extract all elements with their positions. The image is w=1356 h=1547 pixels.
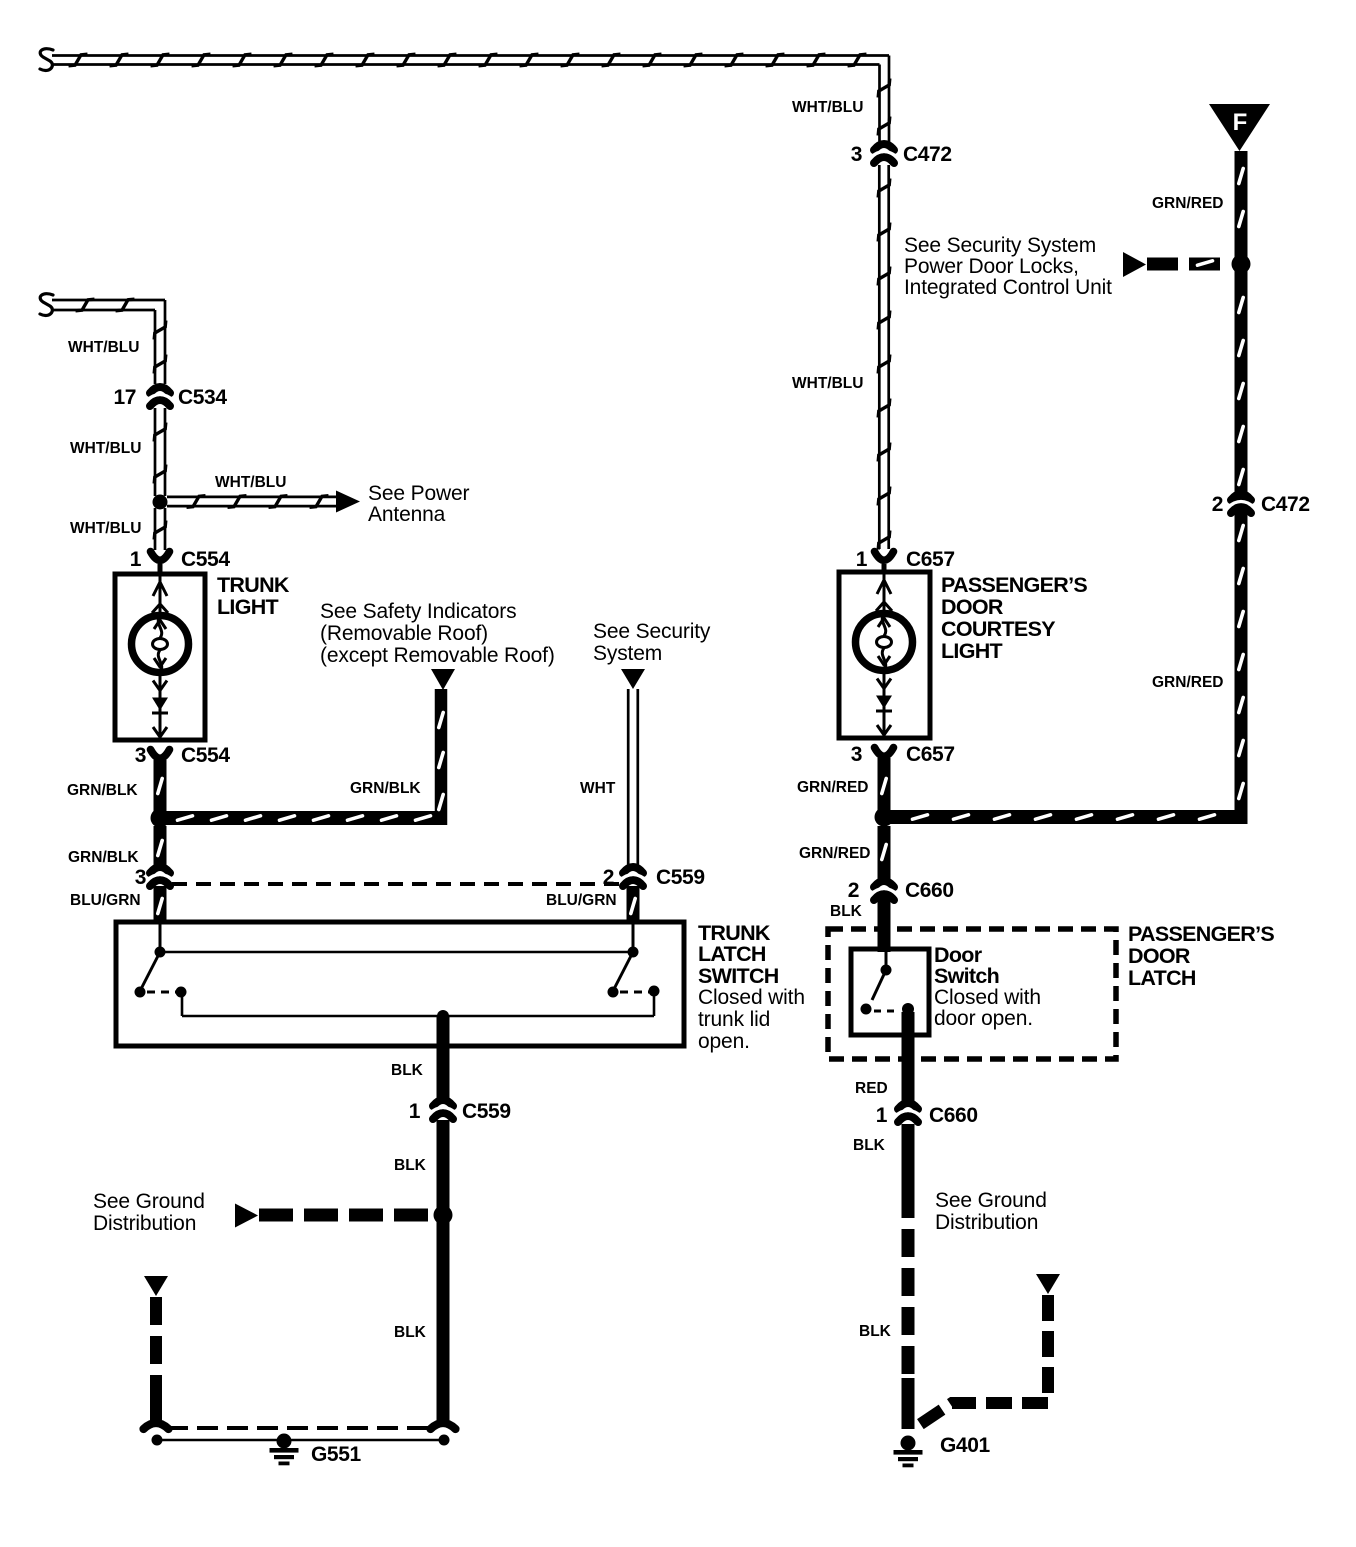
svg-text:COURTESY: COURTESY (941, 617, 1055, 641)
svg-text:open.: open. (698, 1030, 750, 1053)
svg-text:C660: C660 (929, 1104, 978, 1127)
svg-text:C559: C559 (656, 866, 705, 889)
svg-text:BLU/GRN: BLU/GRN (546, 892, 617, 909)
svg-text:3: 3 (135, 866, 146, 889)
svg-text:C660: C660 (905, 879, 954, 902)
svg-text:RED: RED (855, 1080, 888, 1097)
svg-text:(except Removable Roof): (except Removable Roof) (320, 644, 555, 667)
svg-text:(Removable Roof): (Removable Roof) (320, 622, 488, 645)
svg-text:PASSENGER’S: PASSENGER’S (941, 573, 1087, 597)
svg-text:GRN/RED: GRN/RED (797, 779, 868, 796)
svg-text:WHT: WHT (580, 780, 616, 797)
svg-text:Antenna: Antenna (368, 503, 446, 526)
svg-text:BLK: BLK (394, 1157, 427, 1174)
svg-text:1: 1 (876, 1104, 888, 1127)
svg-text:G551: G551 (311, 1443, 361, 1466)
svg-text:LIGHT: LIGHT (941, 639, 1003, 663)
svg-text:See Ground: See Ground (93, 1190, 205, 1213)
svg-text:WHT/BLU: WHT/BLU (792, 375, 863, 392)
svg-text:WHT/BLU: WHT/BLU (68, 339, 139, 356)
svg-text:Distribution: Distribution (93, 1212, 196, 1235)
svg-text:Closed with: Closed with (698, 986, 805, 1009)
svg-text:See Safety Indicators: See Safety Indicators (320, 600, 516, 623)
svg-text:BLK: BLK (853, 1137, 886, 1154)
svg-text:GRN/BLK: GRN/BLK (68, 849, 139, 866)
svg-text:door open.: door open. (934, 1007, 1033, 1030)
svg-text:2: 2 (848, 879, 859, 902)
svg-text:GRN/BLK: GRN/BLK (350, 780, 421, 797)
svg-text:WHT/BLU: WHT/BLU (792, 99, 863, 116)
svg-text:GRN/BLK: GRN/BLK (67, 782, 138, 799)
svg-text:Distribution: Distribution (935, 1211, 1038, 1234)
svg-text:1: 1 (130, 548, 142, 571)
svg-text:C554: C554 (181, 548, 230, 571)
svg-text:3: 3 (851, 743, 862, 766)
svg-text:PASSENGER’S: PASSENGER’S (1128, 922, 1274, 946)
svg-text:BLK: BLK (394, 1324, 427, 1341)
svg-text:3: 3 (851, 143, 862, 166)
svg-text:1: 1 (409, 1100, 421, 1123)
svg-text:trunk lid: trunk lid (698, 1008, 770, 1031)
svg-text:Closed with: Closed with (934, 986, 1041, 1009)
svg-text:WHT/BLU: WHT/BLU (70, 440, 141, 457)
svg-text:LIGHT: LIGHT (217, 595, 279, 619)
svg-text:2: 2 (1212, 493, 1223, 516)
svg-text:BLK: BLK (830, 903, 863, 920)
svg-text:1: 1 (856, 548, 868, 571)
svg-text:C534: C534 (178, 386, 227, 409)
svg-text:SWITCH: SWITCH (698, 964, 779, 988)
svg-text:See Power: See Power (368, 482, 470, 505)
svg-text:G401: G401 (940, 1434, 990, 1457)
svg-text:GRN/RED: GRN/RED (799, 845, 870, 862)
svg-text:WHT/BLU: WHT/BLU (70, 520, 141, 537)
svg-text:WHT/BLU: WHT/BLU (215, 474, 286, 491)
svg-text:TRUNK: TRUNK (217, 573, 290, 597)
svg-text:Power Door Locks,: Power Door Locks, (904, 255, 1079, 278)
svg-text:2: 2 (603, 866, 614, 889)
svg-text:GRN/RED: GRN/RED (1152, 674, 1223, 691)
svg-text:BLK: BLK (391, 1062, 424, 1079)
svg-text:3: 3 (135, 744, 146, 767)
svg-text:System: System (593, 642, 662, 665)
svg-text:See Security System: See Security System (904, 234, 1096, 257)
svg-text:DOOR: DOOR (1128, 944, 1191, 968)
svg-text:LATCH: LATCH (1128, 966, 1196, 990)
svg-text:C554: C554 (181, 744, 230, 767)
svg-text:Integrated Control Unit: Integrated Control Unit (904, 276, 1112, 299)
svg-text:LATCH: LATCH (698, 942, 766, 966)
svg-text:See Security: See Security (593, 620, 711, 643)
svg-text:F: F (1233, 109, 1248, 136)
svg-text:C472: C472 (1261, 493, 1310, 516)
svg-text:C657: C657 (906, 743, 955, 766)
svg-text:C472: C472 (903, 143, 952, 166)
svg-text:Switch: Switch (934, 964, 999, 988)
svg-text:DOOR: DOOR (941, 595, 1004, 619)
svg-text:C657: C657 (906, 548, 955, 571)
svg-text:C559: C559 (462, 1100, 511, 1123)
svg-text:17: 17 (113, 386, 136, 409)
svg-text:BLK: BLK (859, 1323, 892, 1340)
svg-text:GRN/RED: GRN/RED (1152, 195, 1223, 212)
svg-text:BLU/GRN: BLU/GRN (70, 892, 141, 909)
svg-text:See Ground: See Ground (935, 1189, 1047, 1212)
